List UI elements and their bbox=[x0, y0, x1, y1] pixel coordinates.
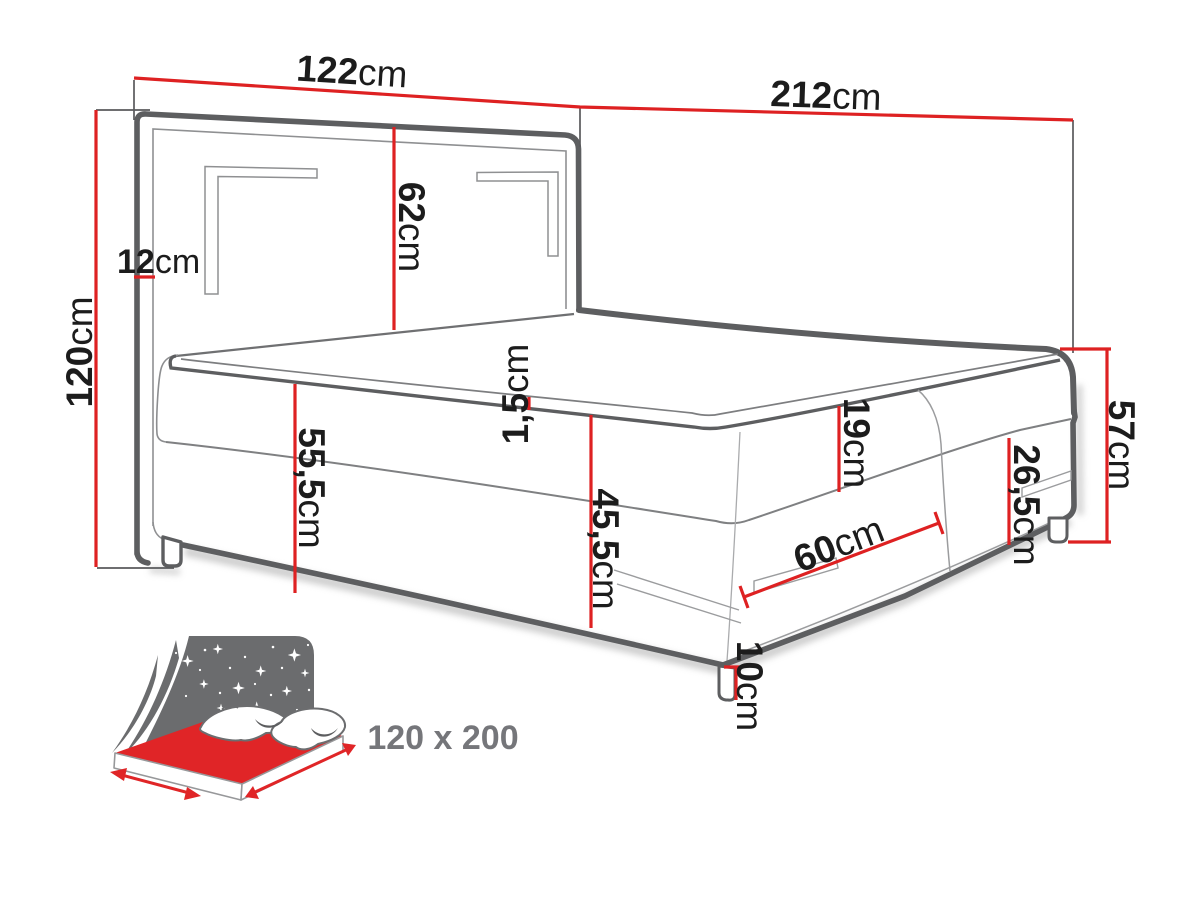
svg-text:212cm: 212cm bbox=[770, 73, 882, 118]
svg-text:122cm: 122cm bbox=[295, 47, 408, 95]
svg-text:19cm: 19cm bbox=[837, 398, 878, 488]
svg-text:57cm: 57cm bbox=[1102, 400, 1143, 490]
svg-text:12cm: 12cm bbox=[117, 243, 200, 281]
svg-text:45,5cm: 45,5cm bbox=[586, 488, 627, 609]
svg-text:10cm: 10cm bbox=[730, 641, 771, 731]
svg-text:120cm: 120cm bbox=[59, 296, 100, 407]
svg-text:26,5cm: 26,5cm bbox=[1007, 444, 1048, 565]
svg-text:62cm: 62cm bbox=[392, 182, 433, 272]
svg-text:120 x 200: 120 x 200 bbox=[367, 719, 518, 757]
svg-text:1,5cm: 1,5cm bbox=[495, 344, 536, 445]
svg-text:55,5cm: 55,5cm bbox=[292, 427, 333, 548]
